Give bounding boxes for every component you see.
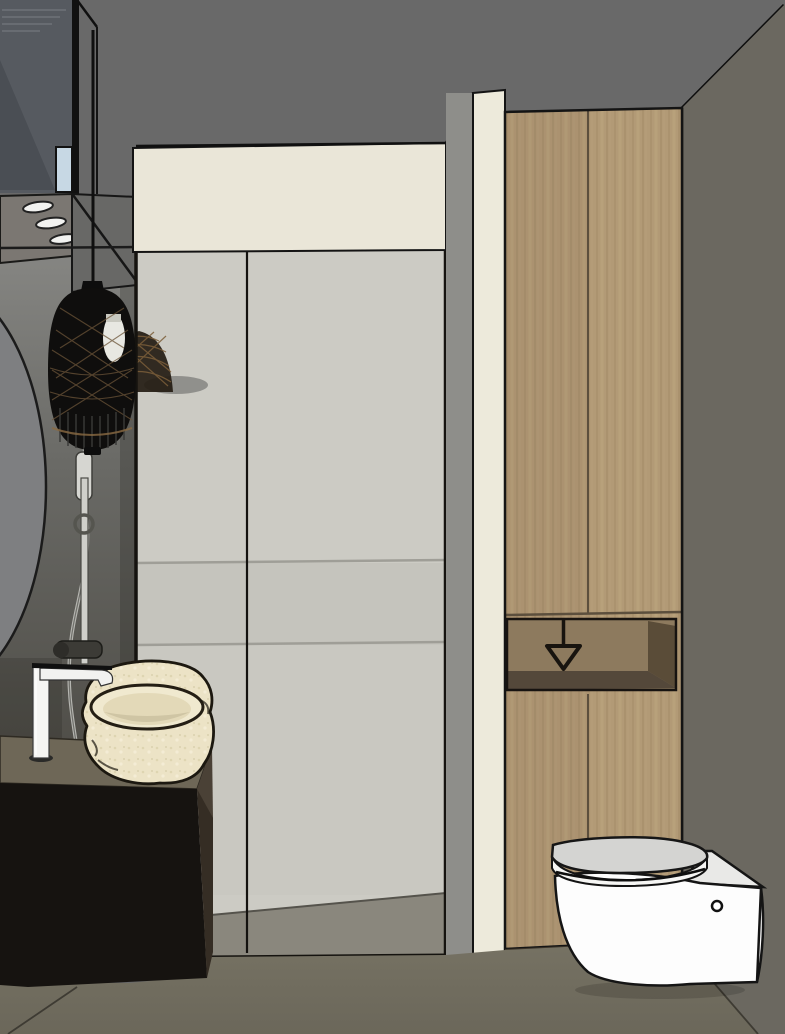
shower-rail bbox=[81, 478, 88, 664]
left-door-shade bbox=[505, 112, 588, 949]
tile-band bbox=[136, 563, 446, 645]
toilet-body bbox=[555, 873, 763, 986]
shower-bulkhead bbox=[133, 143, 446, 252]
cabinet-niche bbox=[507, 619, 676, 690]
shelf-front-bar bbox=[72, 0, 79, 196]
pendant-bottom-nub bbox=[84, 447, 101, 455]
cream-pillar bbox=[473, 90, 505, 955]
vanity-cabinet bbox=[0, 783, 207, 987]
bathroom-render bbox=[0, 0, 785, 1034]
render-canvas bbox=[0, 0, 785, 1034]
shelf-rail-line bbox=[0, 247, 137, 248]
glass-return-strip bbox=[446, 93, 473, 955]
wood-cabinet bbox=[505, 108, 682, 958]
niche-bottom-shadow bbox=[507, 671, 676, 690]
toilet-button bbox=[712, 901, 722, 911]
mixer-knob bbox=[53, 642, 69, 658]
window-strip bbox=[56, 147, 72, 192]
toilet-seat-top bbox=[552, 837, 707, 873]
